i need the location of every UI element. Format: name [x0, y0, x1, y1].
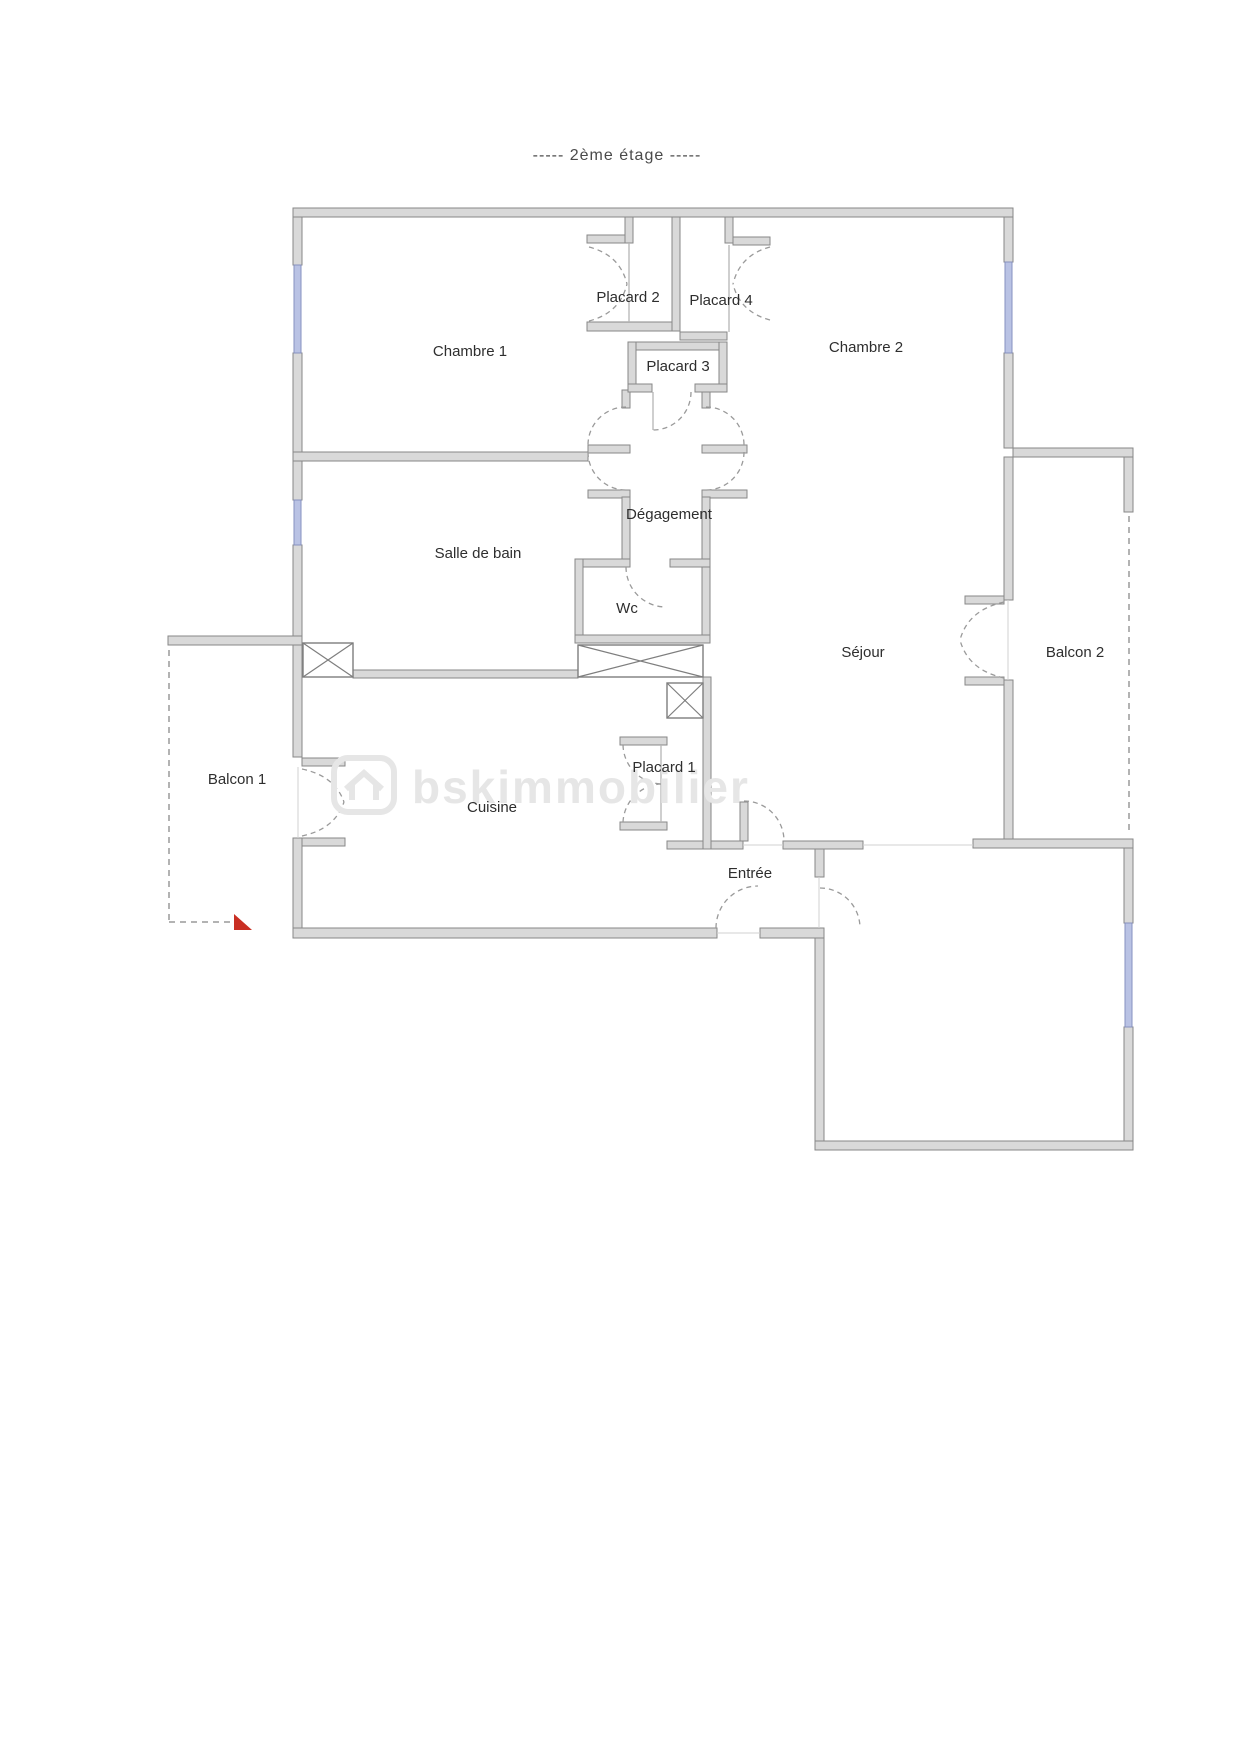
room-label-chambre-1: Chambre 1	[433, 343, 507, 360]
window-chambre2	[1005, 262, 1012, 353]
balcony-dashed-edges	[169, 516, 1129, 922]
room-label-chambre-2: Chambre 2	[829, 339, 903, 356]
walls	[168, 208, 1133, 1150]
watermark-text: bskimmobilier	[412, 761, 750, 813]
room-label-wc: Wc	[616, 600, 638, 617]
floor-plan-page: ----- 2ème étage -----	[0, 0, 1240, 1755]
duct-shaft-symbols	[303, 643, 703, 718]
room-label-entree: Entrée	[728, 865, 772, 882]
room-label-sejour: Séjour	[841, 644, 884, 661]
room-label-salle-de-bain: Salle de bain	[435, 545, 522, 562]
room-label-placard-3: Placard 3	[646, 358, 709, 375]
floor-plan: ----- 2ème étage -----	[0, 0, 1240, 1755]
room-label-balcon-2: Balcon 2	[1046, 644, 1104, 661]
room-label-cuisine: Cuisine	[467, 799, 517, 816]
floor-title: ----- 2ème étage -----	[533, 147, 702, 164]
room-label-degagement: Dégagement	[626, 506, 713, 523]
room-label-placard-4: Placard 4	[689, 292, 752, 309]
window-sejour-bas	[1125, 923, 1132, 1027]
room-label-placard-1: Placard 1	[632, 759, 695, 776]
window-salle-de-bain	[294, 500, 301, 545]
room-label-balcon-1: Balcon 1	[208, 771, 266, 788]
house-logo-icon	[346, 773, 382, 800]
red-marker	[234, 914, 252, 930]
room-label-placard-2: Placard 2	[596, 289, 659, 306]
window-chambre1	[294, 265, 301, 353]
